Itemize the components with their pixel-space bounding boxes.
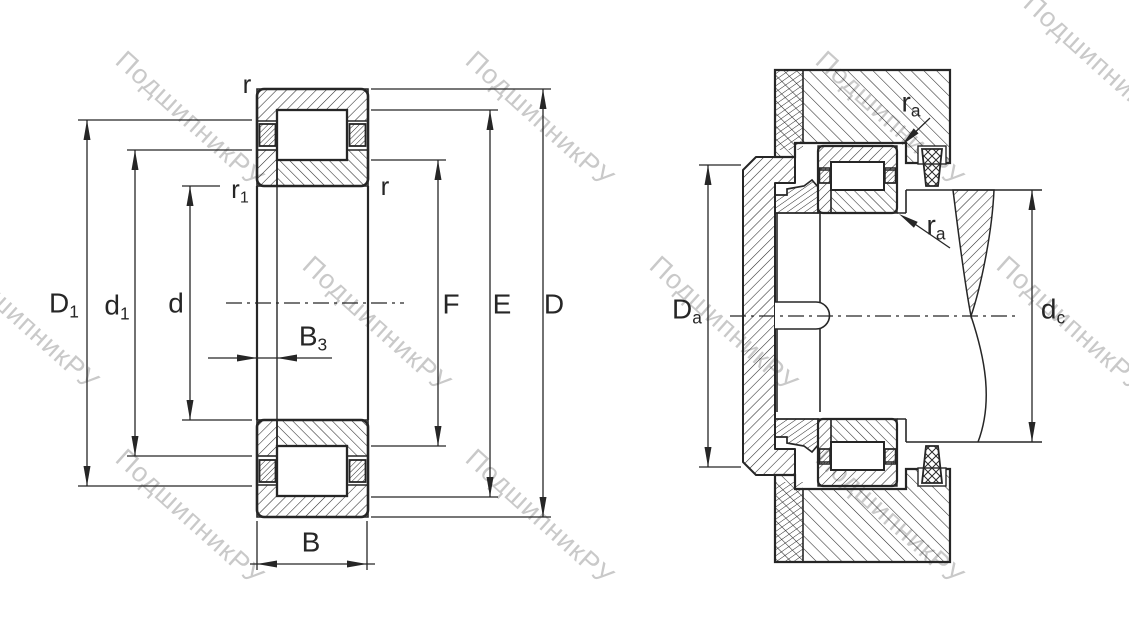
mounted-bearing-bottom [818,419,897,486]
label-Da: Da [672,295,702,326]
label-B3: B3 [299,322,327,353]
label-dc: dc [1041,295,1065,326]
cage [260,124,276,146]
cover-flange-section [775,70,803,150]
mounted-bearing-top [818,146,897,213]
label-ra-bottom: ra [927,211,946,242]
label-d1: d1 [104,291,129,322]
label-d: d [168,289,184,320]
seal [922,446,942,483]
label-D1: D1 [49,289,79,320]
cage [885,168,896,183]
cage [350,124,366,146]
roller [277,110,347,160]
roller [831,162,884,190]
cage [260,460,276,482]
label-D: D [544,290,564,321]
seal [922,149,942,186]
label-ra-top: ra [902,88,921,119]
roller [831,442,884,470]
label-r1: r1 [231,176,249,206]
shaft-break-curve [971,316,986,442]
angle-ring [818,183,831,213]
cage [820,449,831,464]
angle-ring [257,420,277,456]
technical-drawing: ПодшипникРУ ПодшипникРУ ПодшипникРУ Подш… [0,0,1129,632]
roller [277,446,347,496]
label-r-right: r [381,173,390,203]
cage [885,449,896,464]
cover-flange-section [775,482,803,562]
label-r-top: r [243,71,252,101]
cage [820,168,831,183]
label-F: F [442,290,459,321]
label-E: E [493,290,512,321]
angle-ring [818,419,831,449]
right-view [699,70,1042,562]
bearing-section-top [257,89,368,186]
shaft-break [953,190,994,316]
bearing-section-bottom [257,420,368,517]
abutment-ring [775,180,818,213]
angle-ring [257,150,277,186]
label-B: B [302,528,321,559]
cage [350,460,366,482]
abutment-ring [775,419,818,452]
